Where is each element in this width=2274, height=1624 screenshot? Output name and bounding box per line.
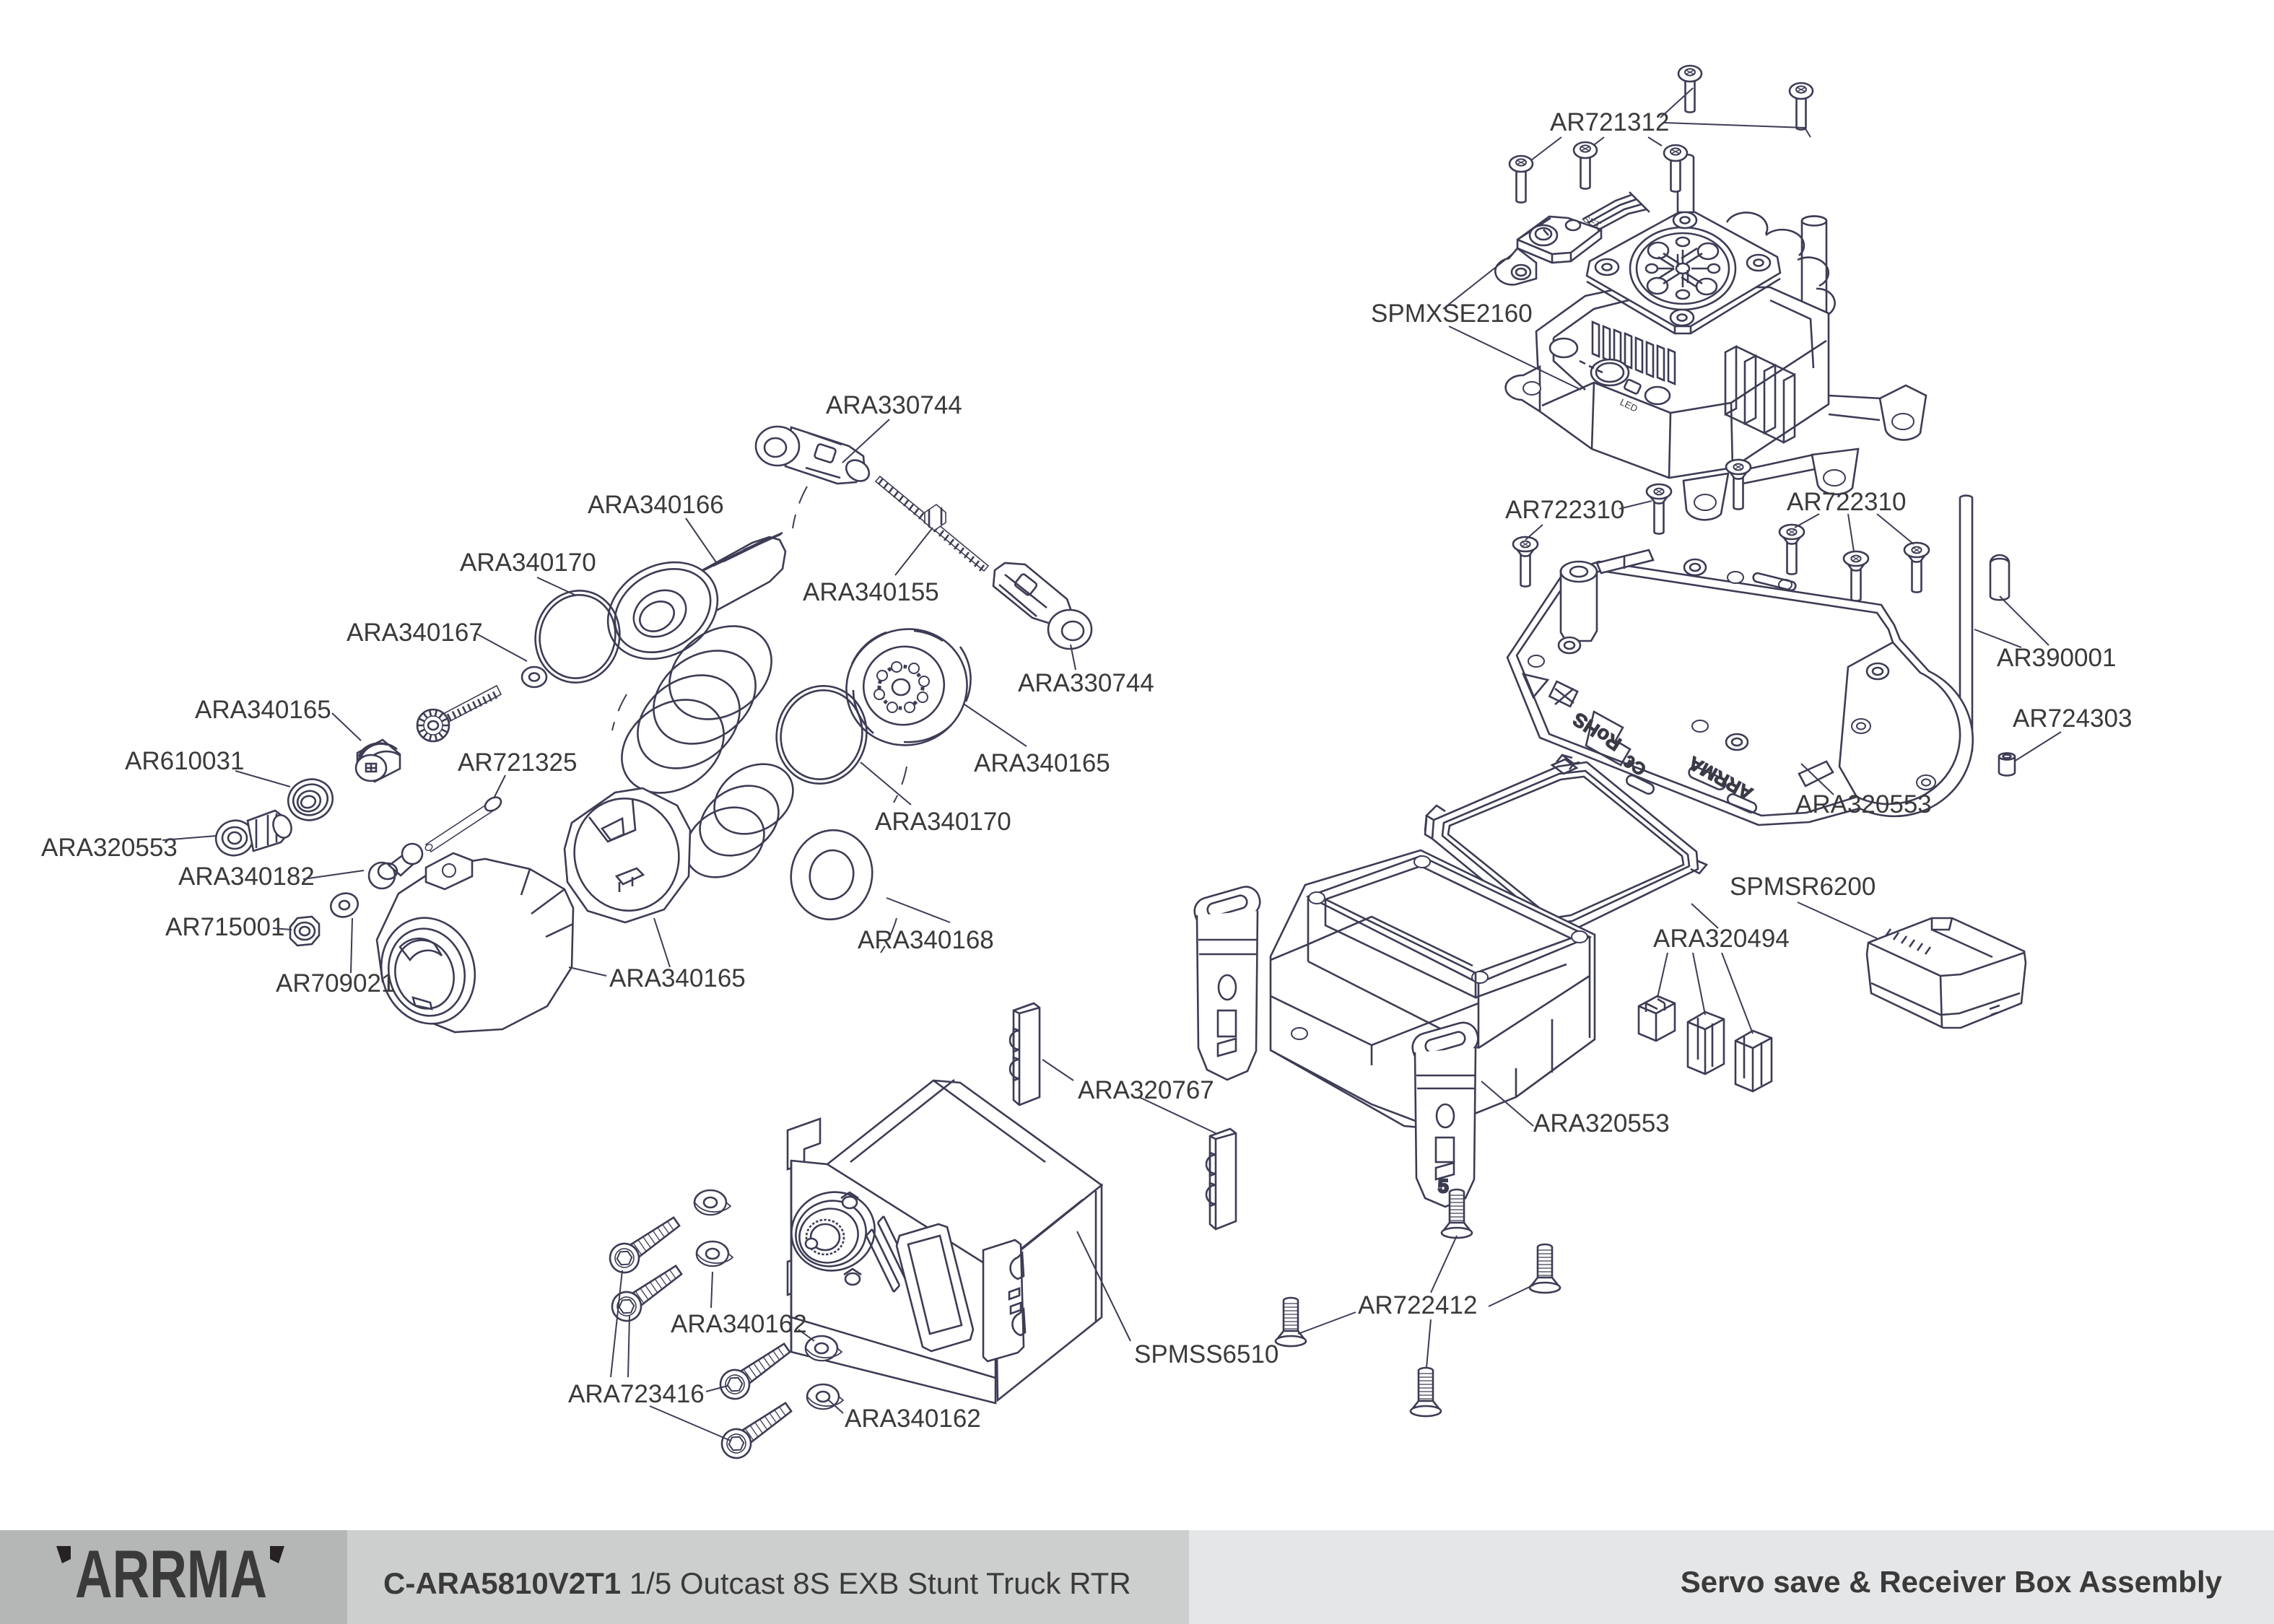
svg-text:AR709021: AR709021 (276, 969, 395, 997)
svg-text:ARA340165: ARA340165 (609, 964, 746, 992)
svg-text:ARA340162: ARA340162 (671, 1310, 807, 1338)
svg-text:ARA340182: ARA340182 (178, 863, 315, 891)
svg-text:ARA340168: ARA340168 (858, 926, 994, 954)
svg-text:ARA723416: ARA723416 (568, 1380, 705, 1408)
svg-text:ARA330744: ARA330744 (826, 391, 962, 419)
svg-text:ARA320553: ARA320553 (1533, 1109, 1670, 1138)
svg-text:ARA340170: ARA340170 (460, 549, 596, 577)
svg-text:ARA340165: ARA340165 (195, 696, 331, 724)
svg-text:AR722310: AR722310 (1787, 488, 1906, 516)
svg-text:C-ARA5810V2T1 1/5 Outcast 8S E: C-ARA5810V2T1 1/5 Outcast 8S EXB Stunt T… (383, 1566, 1131, 1600)
svg-text:AR721312: AR721312 (1550, 108, 1669, 136)
svg-text:AR721325: AR721325 (458, 748, 577, 777)
svg-text:AR610031: AR610031 (125, 747, 244, 775)
svg-text:ARA320494: ARA320494 (1653, 925, 1790, 953)
svg-text:AR390001: AR390001 (1997, 644, 2116, 672)
svg-text:AR722412: AR722412 (1358, 1291, 1477, 1319)
svg-text:ARA340162: ARA340162 (845, 1405, 981, 1433)
svg-text:SPMXSE2160: SPMXSE2160 (1371, 300, 1533, 328)
svg-text:ARA340166: ARA340166 (588, 491, 724, 519)
svg-text:ARA320553: ARA320553 (41, 834, 178, 862)
svg-text:AR724303: AR724303 (2013, 704, 2132, 733)
svg-text:AR722310: AR722310 (1505, 496, 1624, 524)
svg-text:ARA340167: ARA340167 (347, 619, 483, 647)
svg-text:ARA330744: ARA330744 (1018, 669, 1154, 697)
svg-text:ARA340155: ARA340155 (803, 578, 939, 606)
svg-text:ARA340165: ARA340165 (974, 749, 1110, 777)
svg-text:5: 5 (1438, 1175, 1448, 1197)
svg-text:ARA340170: ARA340170 (875, 808, 1011, 836)
svg-text:Servo save & Receiver Box Asse: Servo save & Receiver Box Assembly (1681, 1565, 2223, 1599)
svg-text:ARRMA: ARRMA (75, 1536, 267, 1612)
svg-text:AR715001: AR715001 (165, 913, 284, 941)
svg-text:SPMSR6200: SPMSR6200 (1730, 873, 1876, 901)
svg-text:ARA320553: ARA320553 (1795, 790, 1932, 818)
svg-text:SPMSS6510: SPMSS6510 (1134, 1340, 1278, 1368)
